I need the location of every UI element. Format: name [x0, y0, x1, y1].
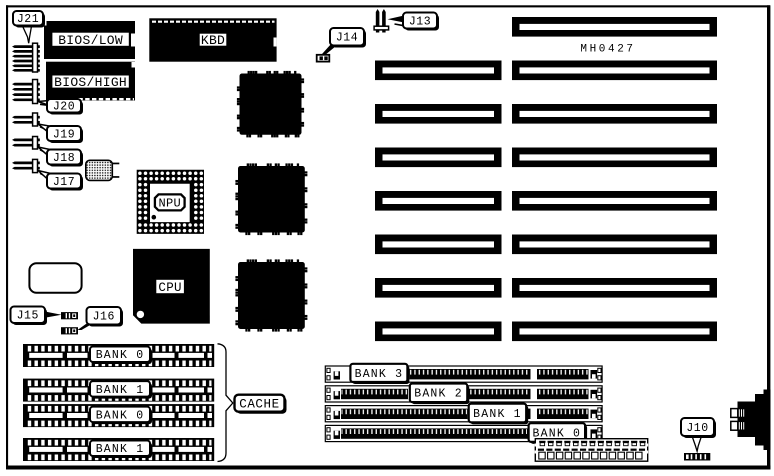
svg-text:J15: J15 — [17, 310, 39, 323]
svg-text:CPU: CPU — [158, 281, 181, 295]
svg-text:J17: J17 — [53, 176, 75, 189]
svg-text:BIOS/HIGH: BIOS/HIGH — [54, 75, 127, 90]
svg-text:BANK 0: BANK 0 — [96, 349, 145, 362]
svg-text:BANK 1: BANK 1 — [96, 384, 145, 397]
svg-text:BANK 0: BANK 0 — [96, 409, 145, 422]
svg-text:NPU: NPU — [158, 197, 181, 211]
svg-text:BANK 1: BANK 1 — [96, 443, 145, 456]
svg-text:BANK 1: BANK 1 — [473, 408, 522, 421]
svg-text:J20: J20 — [53, 101, 75, 114]
svg-text:J21: J21 — [17, 13, 39, 26]
svg-text:BANK 3: BANK 3 — [355, 368, 404, 381]
svg-text:J10: J10 — [686, 422, 708, 435]
svg-text:MH0427: MH0427 — [580, 44, 635, 56]
svg-text:BANK 2: BANK 2 — [414, 388, 463, 401]
svg-text:J18: J18 — [53, 152, 75, 165]
svg-text:J14: J14 — [336, 32, 358, 45]
svg-text:KBD: KBD — [201, 33, 225, 48]
svg-text:CACHE: CACHE — [239, 397, 280, 411]
svg-text:J19: J19 — [53, 128, 75, 141]
svg-text:BIOS/LOW: BIOS/LOW — [58, 33, 123, 48]
svg-text:J16: J16 — [93, 311, 115, 324]
svg-text:J13: J13 — [409, 15, 431, 28]
